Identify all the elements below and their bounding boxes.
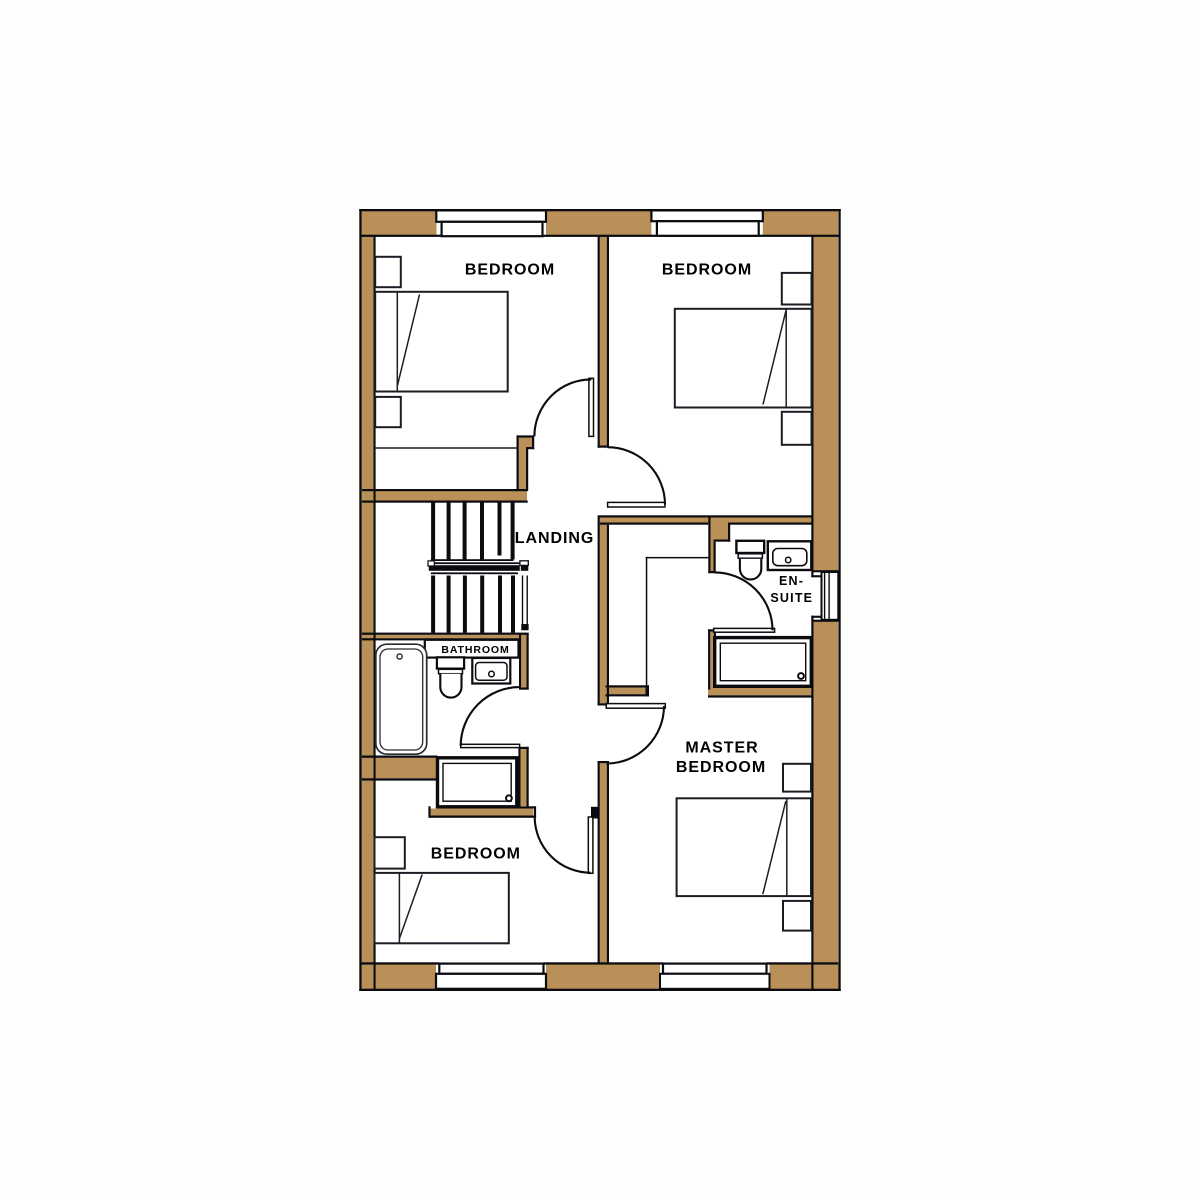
svg-text:BATHROOM: BATHROOM [441,644,509,656]
svg-text:BEDROOM: BEDROOM [662,261,752,278]
svg-text:SUITE: SUITE [770,591,813,605]
svg-text:BEDROOM: BEDROOM [465,261,555,278]
svg-text:LANDING: LANDING [515,530,595,547]
svg-text:EN-: EN- [779,574,804,588]
svg-text:BEDROOM: BEDROOM [676,759,766,776]
svg-text:MASTER: MASTER [685,740,758,757]
svg-text:BEDROOM: BEDROOM [431,846,521,863]
